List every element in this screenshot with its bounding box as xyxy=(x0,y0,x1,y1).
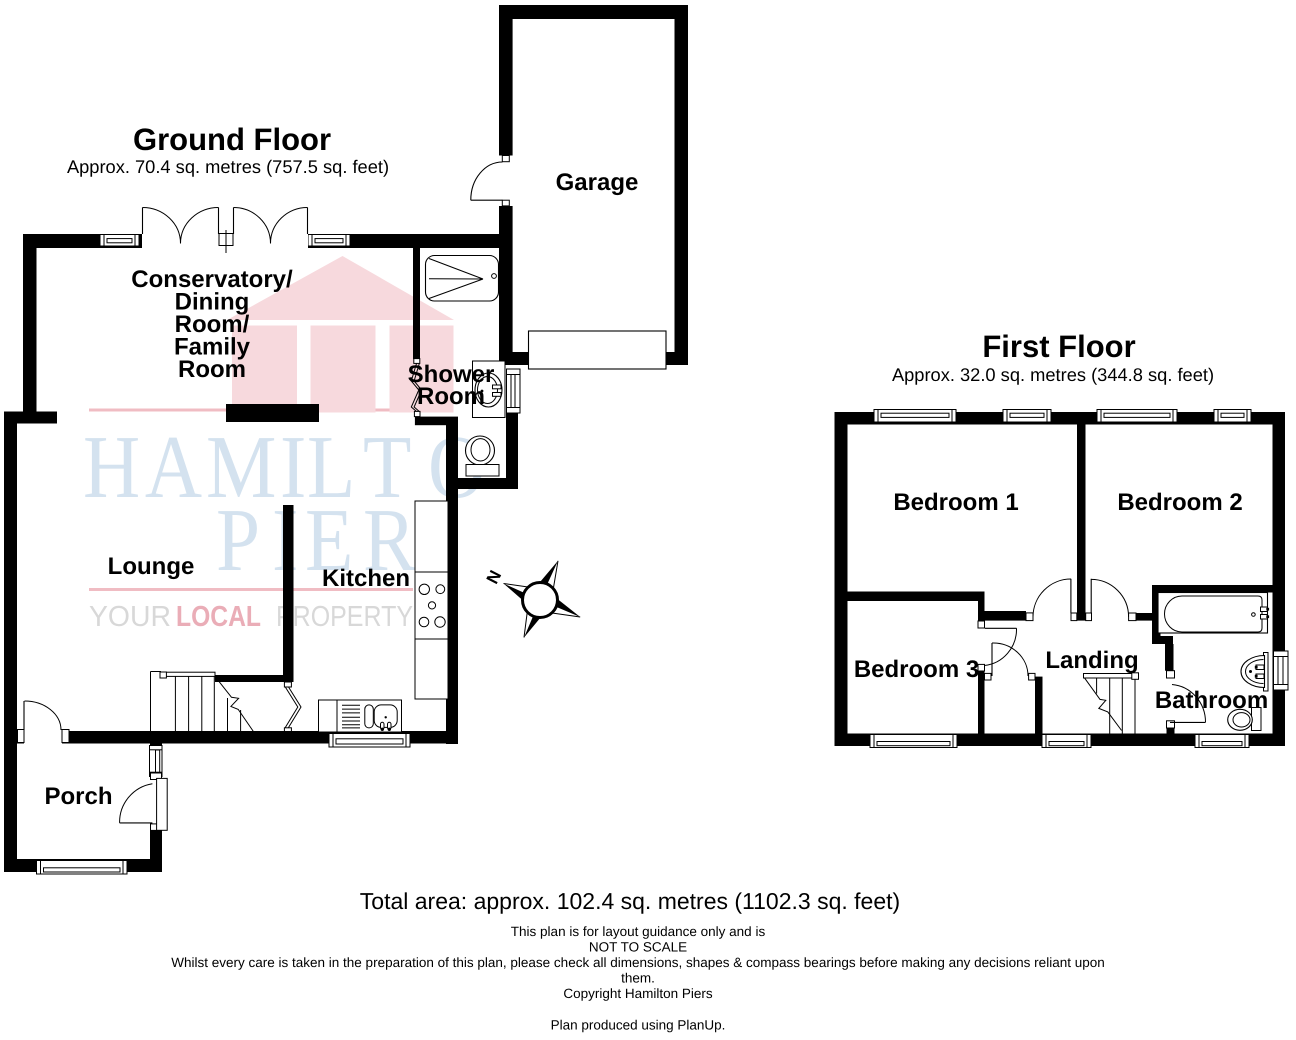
svg-text:Garage: Garage xyxy=(556,169,639,196)
svg-text:Kitchen: Kitchen xyxy=(322,565,410,592)
svg-text:First Floor: First Floor xyxy=(982,329,1135,364)
svg-text:Room: Room xyxy=(178,356,246,383)
svg-text:Room: Room xyxy=(417,383,485,410)
svg-text:Bathroom: Bathroom xyxy=(1155,687,1268,714)
svg-text:Approx. 70.4 sq. metres (757.5: Approx. 70.4 sq. metres (757.5 sq. feet) xyxy=(67,156,389,177)
svg-text:Landing: Landing xyxy=(1045,647,1138,674)
svg-text:Bedroom 3: Bedroom 3 xyxy=(854,656,979,683)
svg-text:Lounge: Lounge xyxy=(108,553,195,580)
svg-text:Bedroom 2: Bedroom 2 xyxy=(1117,489,1242,516)
svg-text:NOT TO SCALE: NOT TO SCALE xyxy=(589,940,687,955)
svg-text:YOURLOCALPROPERTY: YOURLOCALPROPERTY xyxy=(89,601,413,633)
svg-text:Total area: approx. 102.4 sq.: Total area: approx. 102.4 sq. metres (11… xyxy=(360,888,900,914)
svg-text:Approx. 32.0 sq. metres (344.8: Approx. 32.0 sq. metres (344.8 sq. feet) xyxy=(892,364,1214,385)
svg-text:Copyright Hamilton Piers: Copyright Hamilton Piers xyxy=(563,986,713,1001)
svg-text:This plan is for layout guidan: This plan is for layout guidance only an… xyxy=(511,924,766,939)
svg-text:Ground Floor: Ground Floor xyxy=(133,122,331,157)
svg-text:Bedroom 1: Bedroom 1 xyxy=(893,489,1018,516)
svg-text:them.: them. xyxy=(621,971,655,986)
svg-text:Porch: Porch xyxy=(44,783,112,810)
svg-text:Plan produced using PlanUp.: Plan produced using PlanUp. xyxy=(551,1018,726,1033)
svg-text:Whilst every care is taken in: Whilst every care is taken in the prepar… xyxy=(171,955,1105,970)
